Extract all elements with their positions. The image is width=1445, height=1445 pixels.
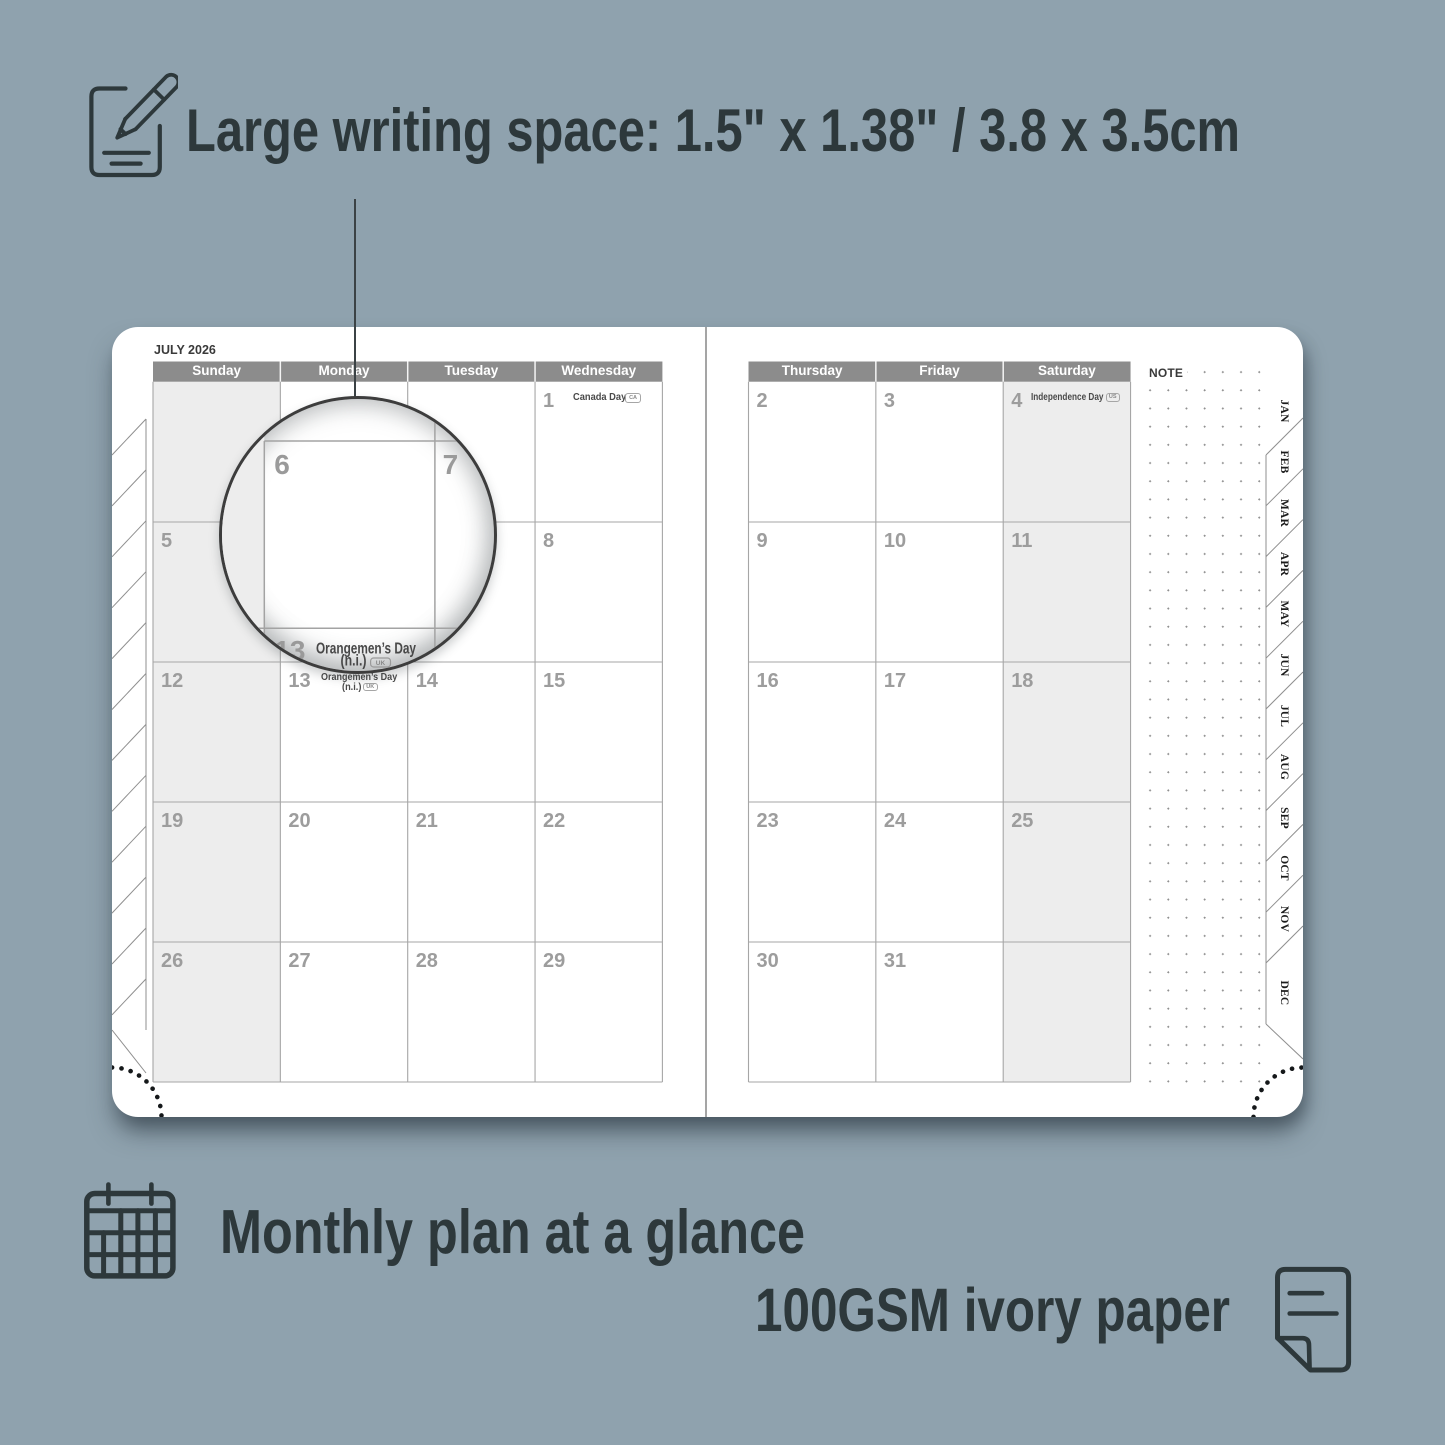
- svg-text:13: 13: [275, 635, 306, 666]
- svg-text:UK: UK: [376, 660, 386, 667]
- svg-text:7: 7: [443, 450, 459, 481]
- svg-text:6: 6: [275, 450, 291, 481]
- svg-text:(n.i.): (n.i.): [341, 653, 367, 670]
